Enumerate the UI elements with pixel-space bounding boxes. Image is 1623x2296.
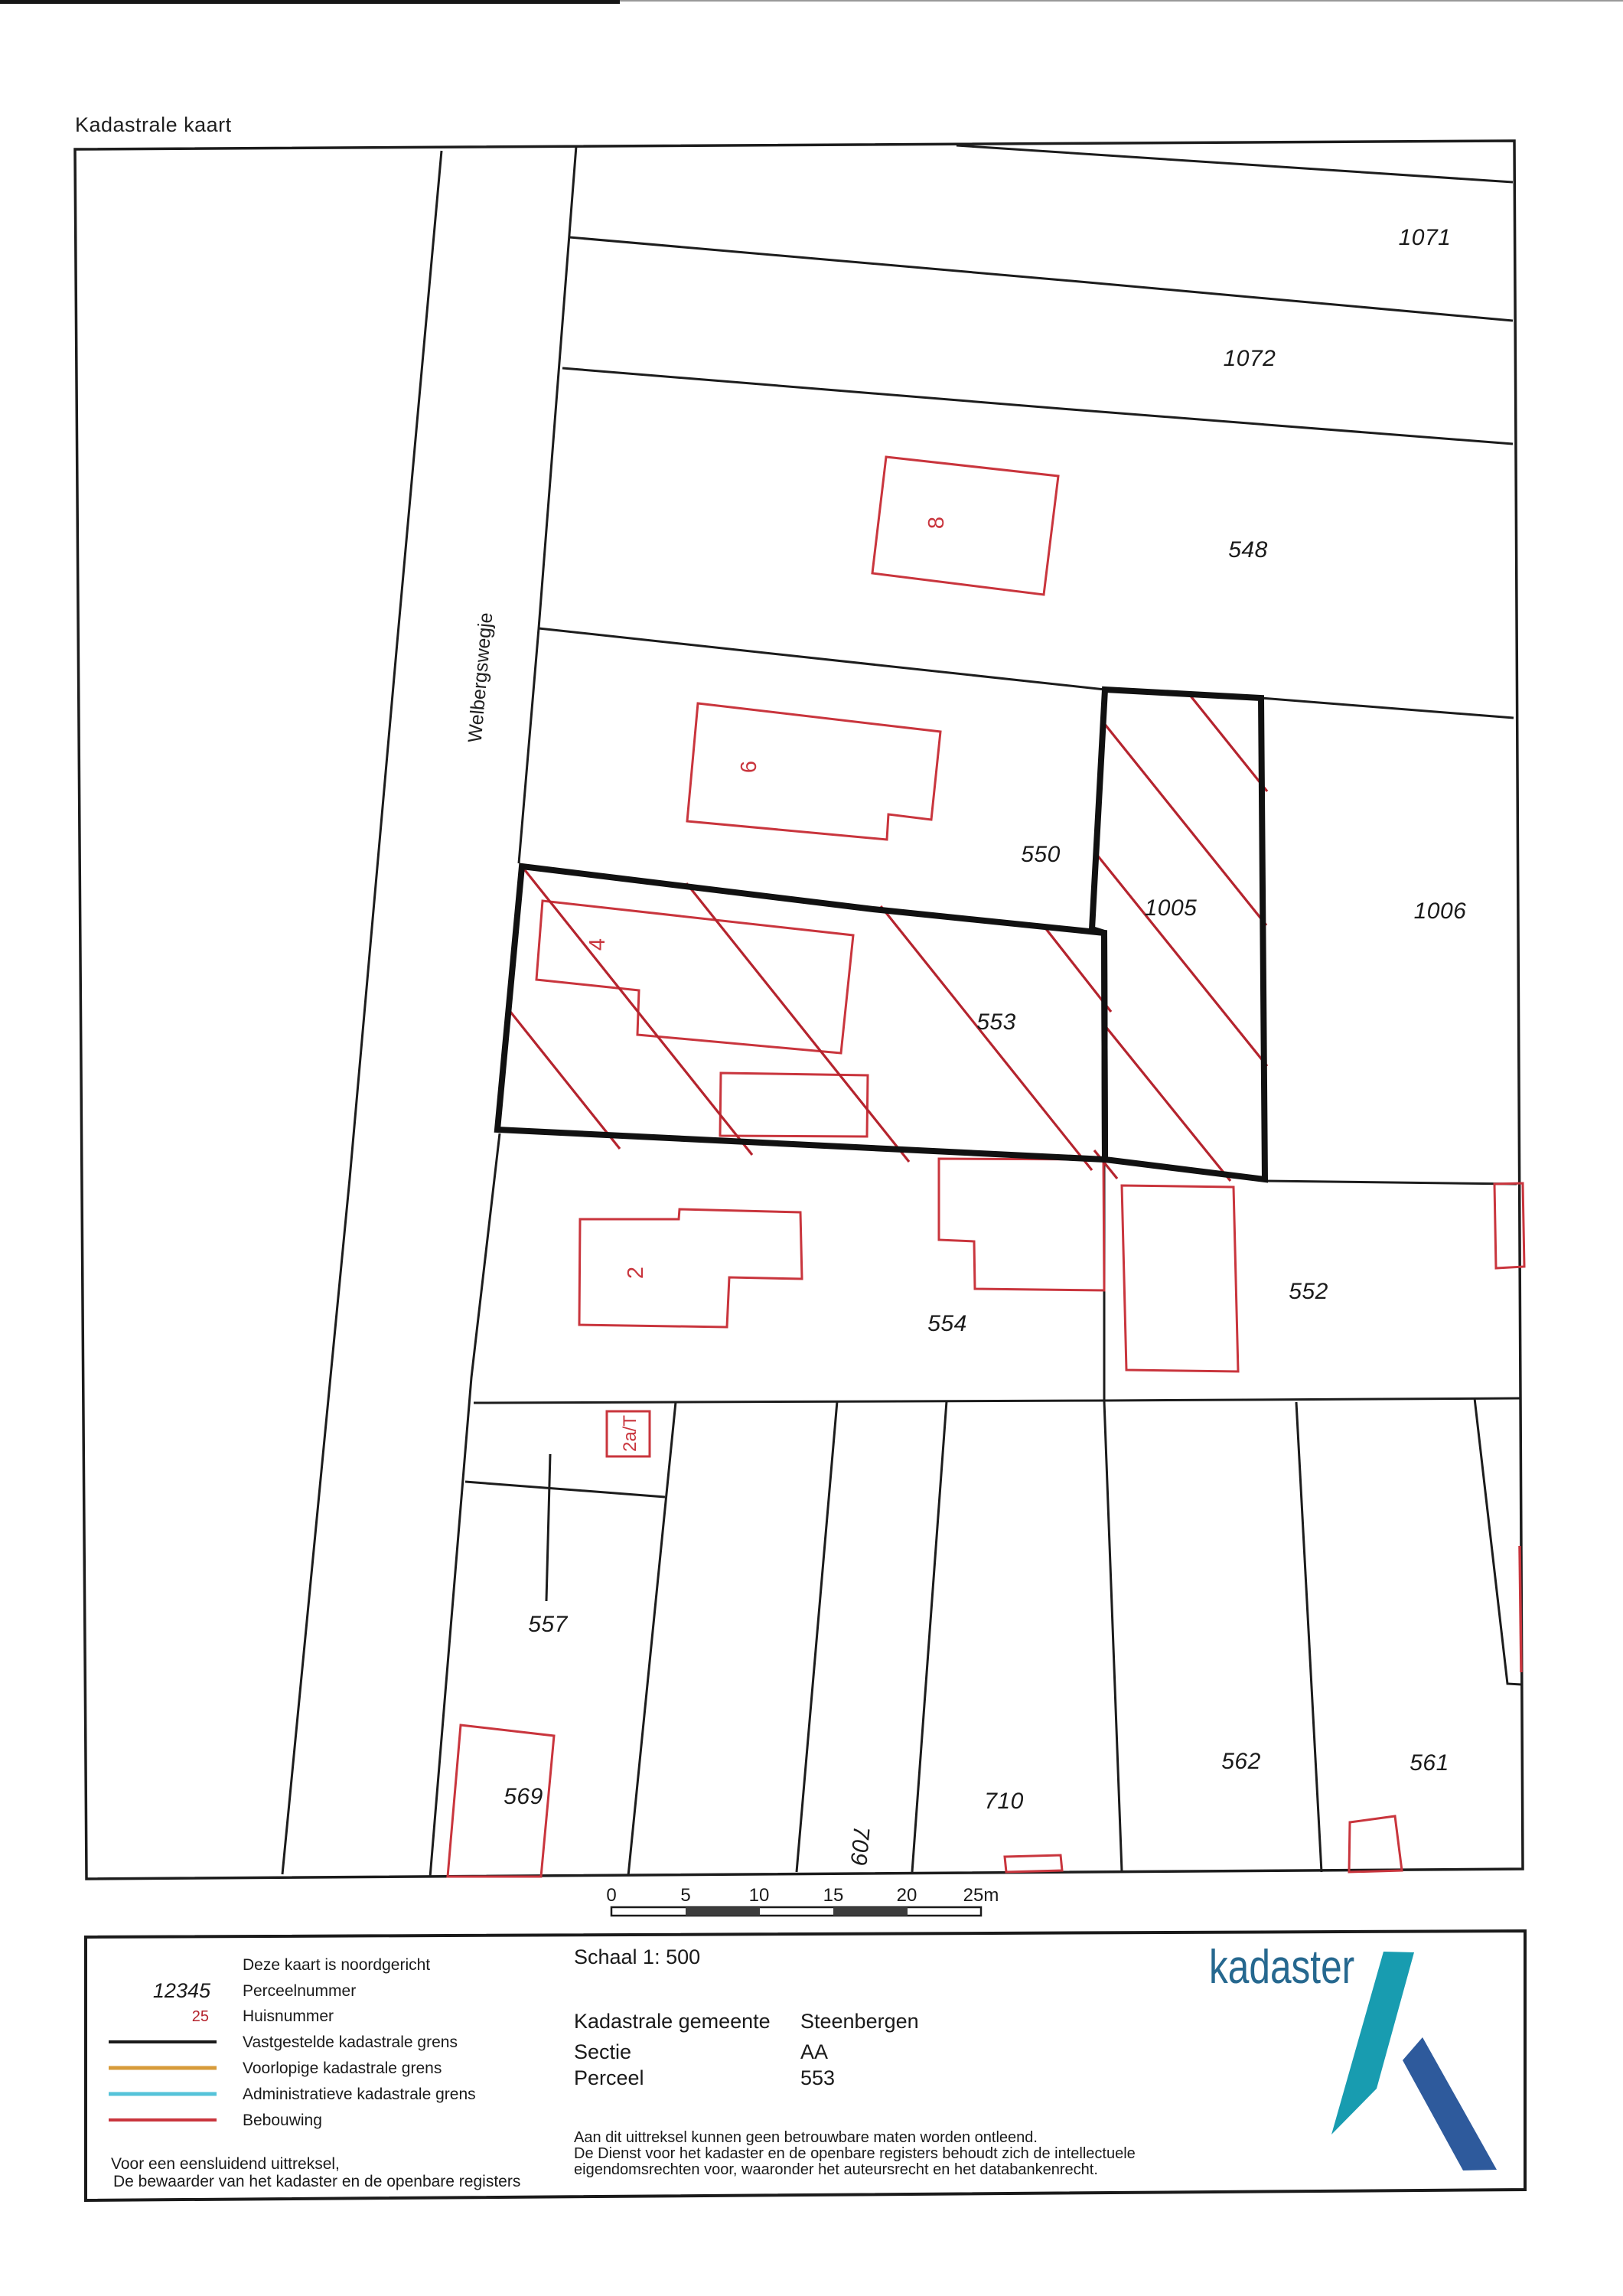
svg-text:25: 25 <box>192 2008 209 2025</box>
svg-text:5: 5 <box>680 1885 690 1906</box>
svg-text:25m: 25m <box>963 1885 999 1906</box>
svg-text:AA: AA <box>800 2040 828 2063</box>
svg-text:553: 553 <box>800 2066 835 2089</box>
svg-text:Aan dit uittreksel kunnen geen: Aan dit uittreksel kunnen geen betrouwba… <box>574 2129 1038 2146</box>
svg-text:De Dienst voor het kadaster en: De Dienst voor het kadaster en de openba… <box>574 2145 1136 2162</box>
svg-text:Schaal 1: 500: Schaal 1: 500 <box>574 1945 700 1968</box>
svg-text:1005: 1005 <box>1145 895 1198 921</box>
svg-text:15: 15 <box>823 1885 844 1906</box>
svg-text:548: 548 <box>1228 537 1268 563</box>
svg-text:4: 4 <box>585 938 610 951</box>
svg-text:2: 2 <box>624 1267 648 1279</box>
svg-text:552: 552 <box>1289 1279 1328 1304</box>
svg-text:Voorlopige kadastrale grens: Voorlopige kadastrale grens <box>243 2060 442 2077</box>
svg-text:Perceelnummer: Perceelnummer <box>243 1982 356 2000</box>
svg-text:569: 569 <box>504 1784 543 1809</box>
svg-text:553: 553 <box>976 1009 1016 1035</box>
svg-text:Steenbergen: Steenbergen <box>800 2010 919 2033</box>
svg-text:1071: 1071 <box>1399 225 1452 250</box>
svg-text:1072: 1072 <box>1224 346 1276 371</box>
svg-text:8: 8 <box>924 517 949 529</box>
svg-text:Kadastrale gemeente: Kadastrale gemeente <box>574 2010 771 2033</box>
svg-text:Kadastrale kaart: Kadastrale kaart <box>75 113 232 136</box>
svg-text:De bewaarder van het kadaster: De bewaarder van het kadaster en de open… <box>113 2173 520 2190</box>
svg-text:0: 0 <box>606 1885 616 1906</box>
svg-text:Bebouwing: Bebouwing <box>243 2112 322 2129</box>
svg-text:kadaster: kadaster <box>1209 1940 1354 1994</box>
svg-text:550: 550 <box>1021 842 1061 867</box>
svg-text:6: 6 <box>737 761 761 773</box>
svg-text:562: 562 <box>1221 1749 1261 1774</box>
svg-text:20: 20 <box>897 1885 917 1906</box>
svg-text:561: 561 <box>1410 1750 1449 1776</box>
svg-text:710: 710 <box>984 1789 1024 1814</box>
svg-text:10: 10 <box>749 1885 770 1906</box>
svg-text:Huisnummer: Huisnummer <box>243 2007 334 2025</box>
svg-text:2a/T: 2a/T <box>620 1415 640 1452</box>
svg-text:Deze kaart is noordgericht: Deze kaart is noordgericht <box>243 1956 430 1974</box>
svg-text:12345: 12345 <box>153 1979 211 2002</box>
svg-text:Voor een eensluidend uittrekse: Voor een eensluidend uittreksel, <box>111 2155 340 2173</box>
svg-text:Administratieve kadastrale gre: Administratieve kadastrale grens <box>243 2086 476 2103</box>
svg-text:Sectie: Sectie <box>574 2040 631 2063</box>
svg-text:709: 709 <box>846 1825 874 1867</box>
svg-text:1006: 1006 <box>1414 899 1467 924</box>
svg-text:Vastgestelde kadastrale grens: Vastgestelde kadastrale grens <box>243 2033 458 2051</box>
svg-text:eigendomsrechten voor, waarond: eigendomsrechten voor, waaronder het aut… <box>574 2161 1098 2178</box>
svg-text:557: 557 <box>528 1612 568 1637</box>
svg-text:Perceel: Perceel <box>574 2066 644 2089</box>
svg-text:554: 554 <box>927 1311 967 1336</box>
